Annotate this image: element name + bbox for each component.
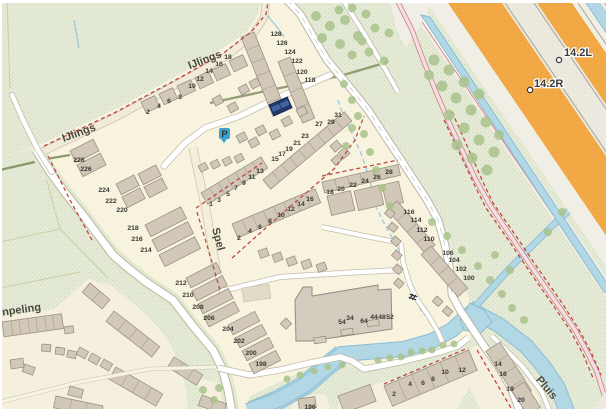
svg-text:110: 110 <box>424 236 435 243</box>
svg-text:13: 13 <box>256 168 264 175</box>
svg-text:7: 7 <box>234 185 238 192</box>
svg-text:12: 12 <box>287 206 295 213</box>
svg-text:104: 104 <box>448 257 460 264</box>
svg-text:206: 206 <box>203 315 215 322</box>
svg-text:18: 18 <box>326 189 334 196</box>
svg-text:2: 2 <box>237 235 241 242</box>
svg-text:24: 24 <box>361 178 369 185</box>
svg-text:16: 16 <box>306 196 314 203</box>
svg-text:12: 12 <box>458 367 466 374</box>
svg-text:1: 1 <box>209 201 213 208</box>
svg-text:48: 48 <box>378 314 386 321</box>
svg-text:23: 23 <box>301 133 309 140</box>
svg-text:11: 11 <box>248 174 255 181</box>
svg-text:8: 8 <box>431 376 435 383</box>
svg-text:9: 9 <box>242 180 246 187</box>
svg-text:18: 18 <box>224 54 232 61</box>
svg-text:204: 204 <box>222 326 234 333</box>
svg-text:8: 8 <box>268 218 272 225</box>
svg-text:228: 228 <box>73 157 85 164</box>
svg-text:14: 14 <box>205 68 213 75</box>
svg-text:5: 5 <box>226 191 230 198</box>
svg-text:6: 6 <box>167 98 171 105</box>
svg-text:17: 17 <box>278 151 286 158</box>
svg-text:28: 28 <box>385 169 393 176</box>
svg-text:20: 20 <box>517 397 525 404</box>
svg-text:6: 6 <box>421 380 425 387</box>
svg-text:20: 20 <box>337 186 345 193</box>
svg-text:2: 2 <box>146 109 150 116</box>
svg-text:14: 14 <box>297 201 305 208</box>
svg-text:208: 208 <box>192 304 204 311</box>
svg-text:224: 224 <box>98 187 110 194</box>
svg-text:118: 118 <box>305 77 316 84</box>
svg-text:10: 10 <box>441 369 449 376</box>
svg-text:15: 15 <box>271 156 279 163</box>
svg-text:27: 27 <box>315 121 323 128</box>
svg-text:22: 22 <box>349 182 357 189</box>
svg-text:2: 2 <box>392 391 396 398</box>
svg-text:226: 226 <box>80 166 92 173</box>
svg-text:106: 106 <box>442 250 454 257</box>
svg-text:116: 116 <box>404 209 415 216</box>
svg-text:216: 216 <box>131 236 143 243</box>
svg-text:214: 214 <box>140 247 152 254</box>
svg-text:124: 124 <box>284 49 296 56</box>
svg-text:100: 100 <box>463 275 475 282</box>
svg-text:6: 6 <box>258 224 262 231</box>
svg-text:16: 16 <box>499 371 507 378</box>
svg-text:222: 222 <box>105 198 117 205</box>
svg-text:4: 4 <box>408 381 412 388</box>
svg-text:218: 218 <box>127 225 139 232</box>
svg-text:34: 34 <box>346 315 354 322</box>
svg-text:3: 3 <box>217 197 221 204</box>
svg-text:212: 212 <box>175 280 187 287</box>
svg-text:14.2L: 14.2L <box>564 47 592 59</box>
svg-text:200: 200 <box>245 350 257 357</box>
svg-text:21: 21 <box>293 140 301 147</box>
svg-text:126: 126 <box>276 40 288 47</box>
svg-text:29: 29 <box>327 119 335 126</box>
svg-text:10: 10 <box>277 212 285 219</box>
svg-text:19: 19 <box>285 146 293 153</box>
svg-text:31: 31 <box>334 112 342 119</box>
svg-text:18: 18 <box>506 386 514 393</box>
svg-text:210: 210 <box>182 292 194 299</box>
svg-text:64: 64 <box>360 318 368 325</box>
svg-text:112: 112 <box>417 227 428 234</box>
svg-text:102: 102 <box>455 266 467 273</box>
svg-text:8: 8 <box>178 94 182 101</box>
svg-text:14: 14 <box>494 361 502 368</box>
svg-text:128: 128 <box>270 31 282 38</box>
svg-text:202: 202 <box>233 338 245 345</box>
svg-text:122: 122 <box>291 58 303 65</box>
svg-text:4: 4 <box>248 228 252 235</box>
svg-text:26: 26 <box>373 174 381 181</box>
svg-text:52: 52 <box>386 314 394 321</box>
svg-text:54: 54 <box>338 319 346 326</box>
svg-text:10: 10 <box>188 83 196 90</box>
svg-text:14.2R: 14.2R <box>534 78 563 90</box>
svg-text:44: 44 <box>370 314 378 321</box>
svg-text:4: 4 <box>157 103 161 110</box>
svg-text:198: 198 <box>255 361 267 368</box>
svg-text:120: 120 <box>296 69 308 76</box>
svg-text:12: 12 <box>196 76 204 83</box>
svg-text:114: 114 <box>411 217 422 224</box>
svg-text:220: 220 <box>116 207 128 214</box>
svg-text:P: P <box>221 129 228 140</box>
